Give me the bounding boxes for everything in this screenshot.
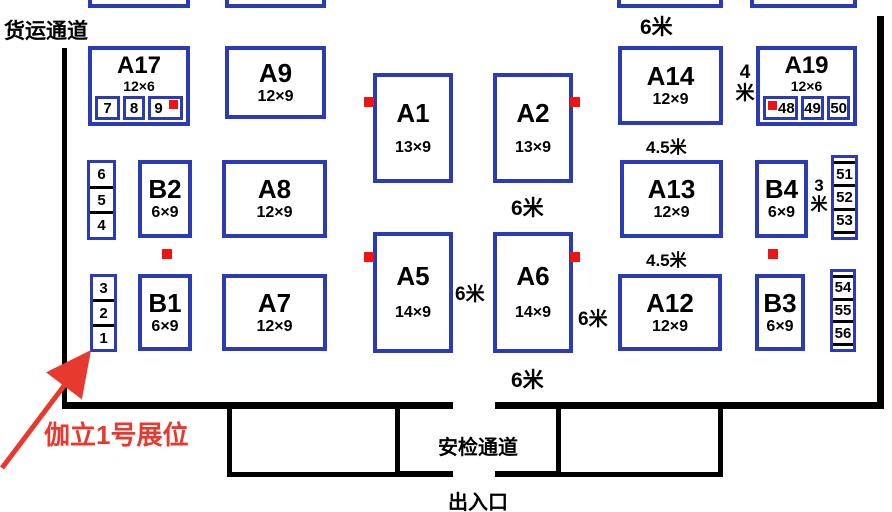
booth-51: 51 xyxy=(834,161,855,187)
booth-a17: A17 12×6 7 8 9 xyxy=(88,46,190,126)
booth-5: 5 xyxy=(90,189,113,215)
hall-bottom-wall-left xyxy=(62,402,453,409)
booth-54: 54 xyxy=(833,275,853,301)
booth-b1-label: B1 xyxy=(148,290,181,317)
booth-48: 48 xyxy=(763,96,798,120)
booth-a12-size: 12×9 xyxy=(652,318,688,336)
hall-left-wall xyxy=(62,48,67,409)
booth-a1-size: 13×9 xyxy=(395,139,431,157)
booth-50: 50 xyxy=(827,96,850,120)
stack-booths-54-55-56: 54 55 56 xyxy=(830,269,856,352)
red-marker-below-b2 xyxy=(162,249,172,259)
booth-b3: B3 6×9 xyxy=(755,274,805,351)
booth-b3-size: 6×9 xyxy=(766,318,793,336)
below-a13-distance-label: 4.5米 xyxy=(646,246,687,271)
booth-partial-top-1 xyxy=(88,0,190,8)
booth-a13: A13 12×9 xyxy=(620,160,723,238)
a6-a12-distance-label: 6米 xyxy=(578,304,608,331)
red-marker-a6-right xyxy=(570,252,580,262)
booth-a19: A19 12×6 48 49 50 xyxy=(756,46,857,126)
booth-a2-size: 13×9 xyxy=(515,139,551,157)
booth-a2: A2 13×9 xyxy=(493,73,573,183)
booth-a1: A1 13×9 xyxy=(373,73,453,183)
below-a6-distance-label: 6米 xyxy=(511,364,544,394)
red-marker-a1-left xyxy=(364,97,374,107)
booth-a19-label: A19 xyxy=(784,53,828,78)
entrance-left-box xyxy=(227,409,400,477)
booth-partial-top-2 xyxy=(225,0,326,8)
booth-a13-size: 12×9 xyxy=(653,204,689,222)
booth-b1: B1 6×9 xyxy=(138,274,192,351)
security-box-bottom-left-segment xyxy=(397,471,453,477)
booth-a9-label: A9 xyxy=(259,60,292,87)
booth-6: 6 xyxy=(90,163,113,189)
booth-2: 2 xyxy=(93,302,114,327)
exhibition-floor-plan: 货运通道 6米 A17 12×6 7 8 9 A9 12×9 A1 13×9 A… xyxy=(0,0,892,512)
booth-8: 8 xyxy=(123,96,145,120)
a5-a6-distance-label: 6米 xyxy=(455,279,485,306)
booth-a8-size: 12×9 xyxy=(256,204,292,222)
below-a2-distance-label: 6米 xyxy=(511,192,544,222)
booth-a5: A5 14×9 xyxy=(373,232,453,353)
hall-bottom-wall-right xyxy=(495,402,884,409)
booth-a8-label: A8 xyxy=(258,176,291,203)
security-box-bottom-right-segment xyxy=(495,471,561,477)
booth-b1-size: 6×9 xyxy=(151,318,178,336)
booth-a17-substrip: 7 8 9 xyxy=(95,96,183,120)
red-marker-booth-9 xyxy=(169,100,178,109)
booth-a14: A14 12×9 xyxy=(618,46,723,125)
above-a13-distance-label: 4.5米 xyxy=(646,133,687,158)
booth-b2: B2 6×9 xyxy=(138,160,192,238)
booth-a8: A8 12×9 xyxy=(222,160,327,238)
booth-a2-label: A2 xyxy=(516,100,549,127)
booth-a19-substrip: 48 49 50 xyxy=(763,96,850,120)
hall-right-wall xyxy=(877,16,884,409)
booth-b4-label: B4 xyxy=(765,176,798,203)
b4-distance-label: 3米 xyxy=(809,176,829,214)
booth-partial-top-3 xyxy=(617,0,723,8)
booth-partial-top-4 xyxy=(750,0,857,8)
booth-a6: A6 14×9 xyxy=(493,232,573,353)
booth-3: 3 xyxy=(93,277,114,302)
booth-a7-label: A7 xyxy=(258,290,291,317)
booth-a13-label: A13 xyxy=(648,176,696,203)
entrance-exit-label: 出入口 xyxy=(397,486,559,512)
a14-a19-distance-label: 4米 xyxy=(734,62,756,105)
booth-a7-size: 12×9 xyxy=(256,318,292,336)
booth-a17-label: A17 xyxy=(117,53,161,78)
booth-b2-size: 6×9 xyxy=(151,204,178,222)
booth-a14-size: 12×9 xyxy=(652,91,688,109)
annotation-label: 伽立1号展位 xyxy=(44,415,188,452)
freight-channel-label: 货运通道 xyxy=(4,15,88,45)
booth-a1-label: A1 xyxy=(396,100,429,127)
booth-a17-size: 12×6 xyxy=(123,79,155,94)
booth-a5-size: 14×9 xyxy=(395,304,431,322)
booth-a12-label: A12 xyxy=(646,290,694,317)
top-aisle-distance-label: 6米 xyxy=(640,11,673,41)
red-marker-booth-48 xyxy=(768,101,777,110)
stack-booths-51-52-53: 51 52 53 xyxy=(831,155,858,240)
booth-55: 55 xyxy=(833,301,853,324)
booth-b4: B4 6×9 xyxy=(755,160,808,238)
red-marker-a5-left xyxy=(364,252,374,262)
booth-53: 53 xyxy=(834,211,855,234)
booth-a14-label: A14 xyxy=(647,63,695,90)
booth-4: 4 xyxy=(90,214,113,237)
booth-a5-label: A5 xyxy=(396,263,429,290)
security-channel-label: 安检通道 xyxy=(397,431,559,460)
booth-a12: A12 12×9 xyxy=(618,274,722,351)
booth-9: 9 xyxy=(148,96,183,120)
booth-1: 1 xyxy=(93,327,114,349)
booth-a9: A9 12×9 xyxy=(225,46,326,119)
red-marker-below-b4 xyxy=(768,249,778,259)
booth-a6-size: 14×9 xyxy=(515,304,551,322)
booth-a19-size: 12×6 xyxy=(791,79,823,94)
booth-b4-size: 6×9 xyxy=(768,204,795,222)
booth-7: 7 xyxy=(95,96,120,120)
booth-a9-size: 12×9 xyxy=(257,88,293,106)
booth-52: 52 xyxy=(834,187,855,210)
booth-a7: A7 12×9 xyxy=(222,274,327,351)
booth-56: 56 xyxy=(833,323,853,346)
entrance-right-box xyxy=(556,409,723,477)
booth-49: 49 xyxy=(801,96,825,120)
booth-b2-label: B2 xyxy=(148,176,181,203)
stack-booths-3-2-1: 3 2 1 xyxy=(90,274,117,352)
stack-booths-6-5-4: 6 5 4 xyxy=(87,160,116,240)
booth-a6-label: A6 xyxy=(516,263,549,290)
booth-b3-label: B3 xyxy=(763,290,796,317)
red-marker-a2-right xyxy=(570,97,580,107)
